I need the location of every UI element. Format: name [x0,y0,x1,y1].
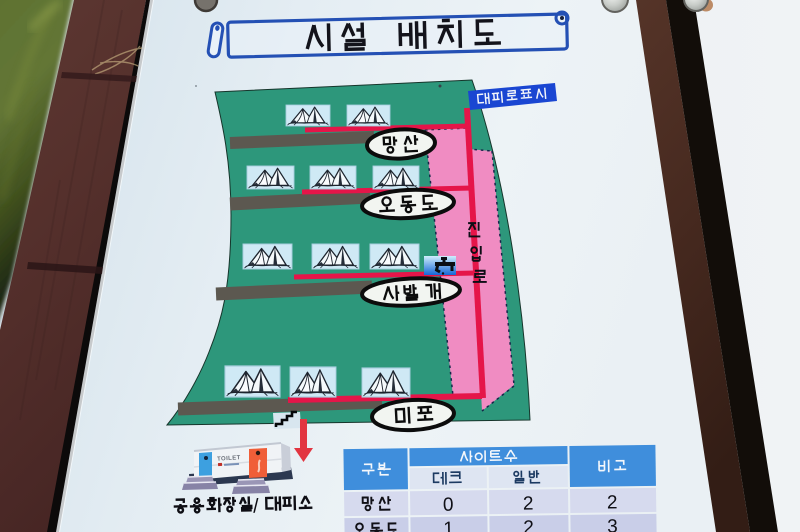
svg-text:3: 3 [607,516,618,532]
svg-text:/: / [253,496,260,518]
svg-text:2: 2 [607,492,618,513]
svg-text:0: 0 [443,495,454,516]
svg-text:1: 1 [443,519,454,532]
svg-text:2: 2 [523,494,534,515]
svg-text:2: 2 [523,518,534,532]
